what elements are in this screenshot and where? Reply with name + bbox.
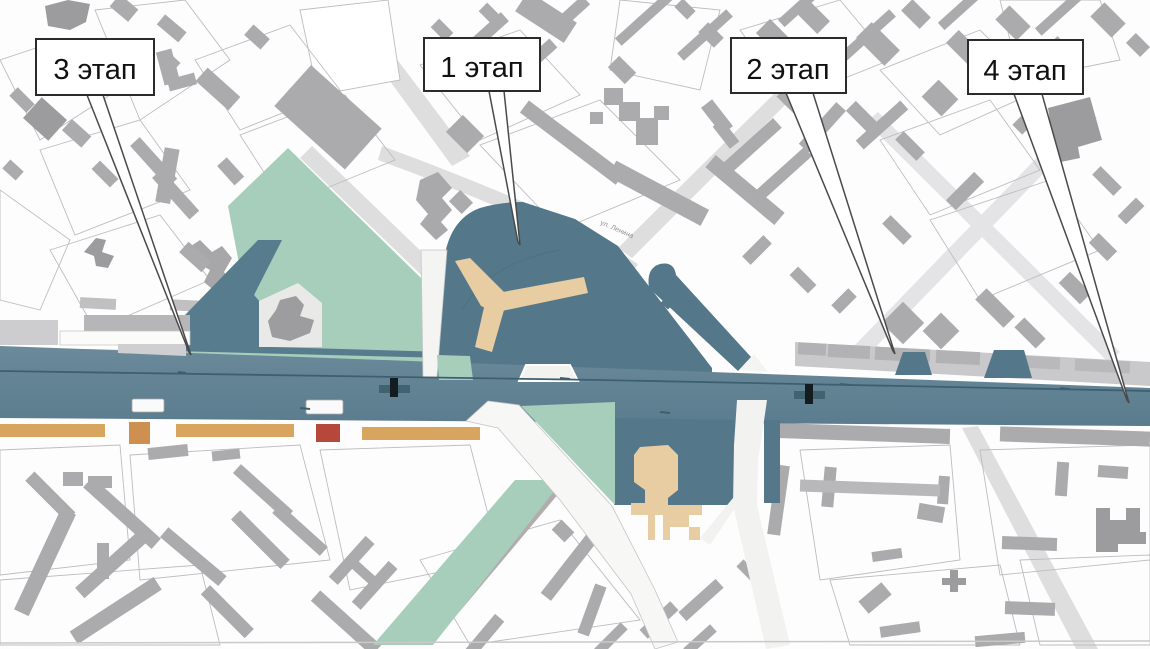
svg-text:2 этап: 2 этап — [746, 54, 829, 86]
svg-text:4 этап: 4 этап — [983, 55, 1066, 87]
svg-text:3 этап: 3 этап — [53, 54, 136, 86]
svg-text:1 этап: 1 этап — [440, 52, 523, 84]
